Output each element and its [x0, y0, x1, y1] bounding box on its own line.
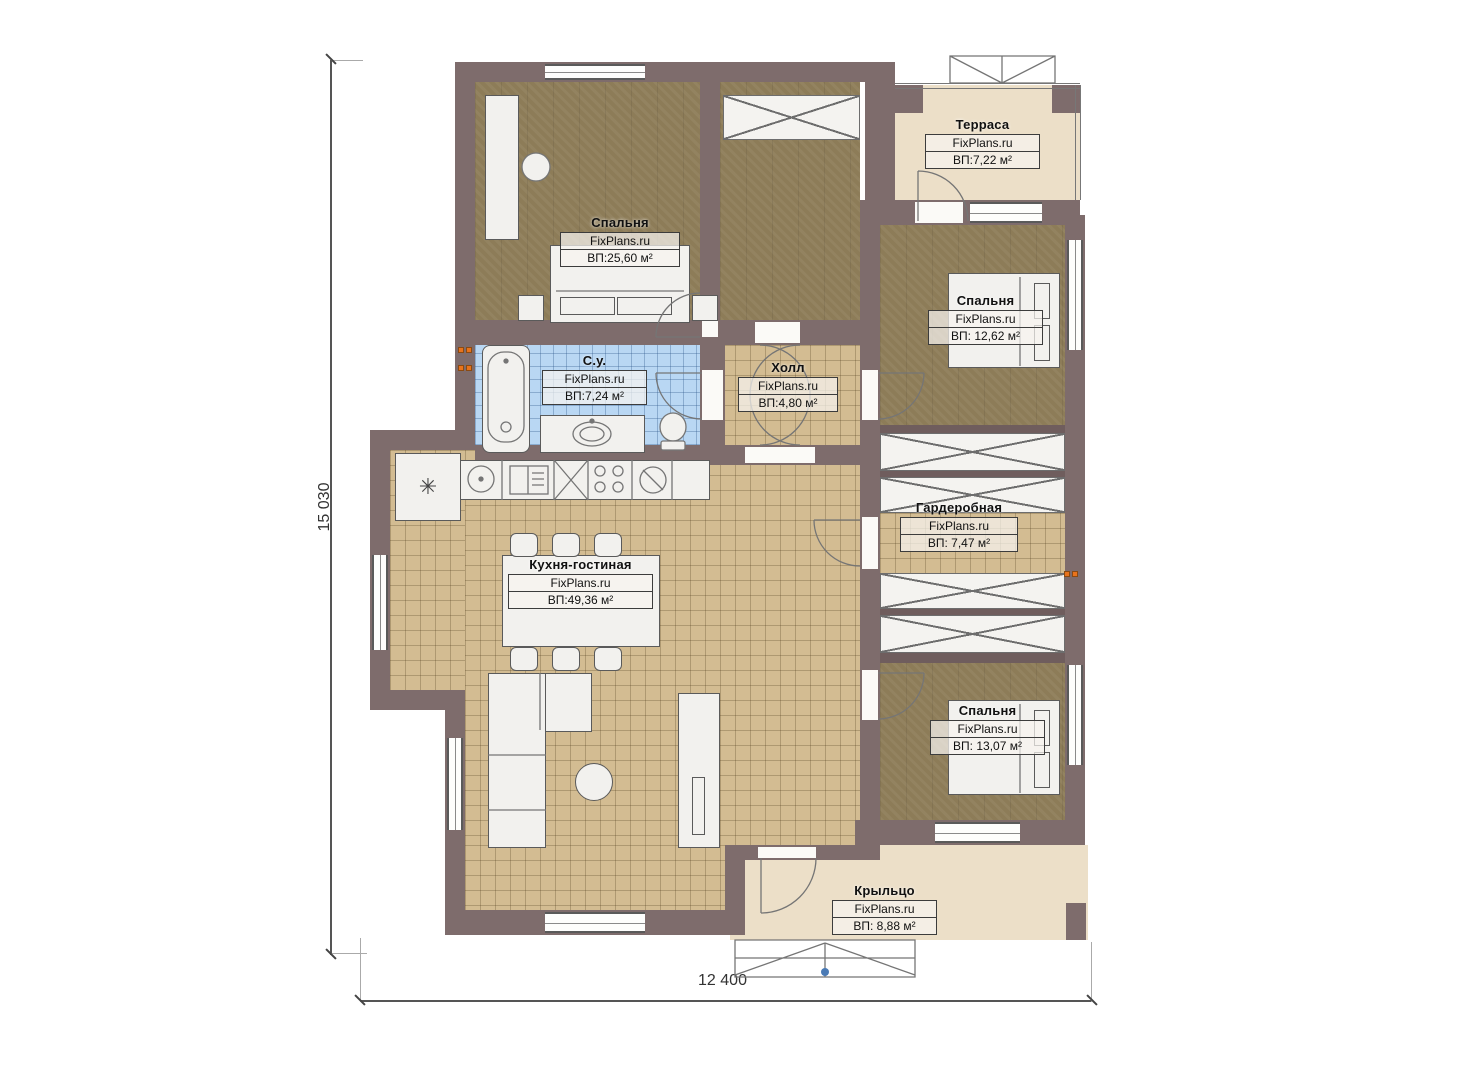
door-opening-kitchen	[745, 447, 815, 463]
window-bedroom1	[545, 64, 645, 80]
room-label-hall: Холл FixPlans.ru ВП:4,80 м²	[738, 360, 838, 412]
room-label-bedroom-2: Спальня FixPlans.ru ВП: 12,62 м²	[928, 293, 1043, 345]
room-area: ВП:49,36 м²	[509, 592, 652, 608]
room-label-bedroom-3: Спальня FixPlans.ru ВП: 13,07 м²	[930, 703, 1045, 755]
door-opening-terrace	[915, 202, 963, 223]
radiator-icon	[466, 347, 472, 353]
room-area: ВП:4,80 м²	[739, 395, 837, 411]
window-kitchen-bay	[372, 555, 388, 650]
terrace-post	[895, 85, 923, 113]
brand-watermark: FixPlans.ru	[901, 518, 1017, 535]
room-label-porch: Крыльцо FixPlans.ru ВП: 8,88 м²	[832, 883, 937, 935]
brand-watermark: FixPlans.ru	[509, 575, 652, 592]
nightstand	[692, 295, 718, 321]
room-area: ВП: 7,47 м²	[901, 535, 1017, 551]
porch-post	[1066, 903, 1086, 940]
sofa-arm-vertical	[488, 673, 546, 848]
pillow	[617, 297, 672, 315]
boiler-icon: ✳	[395, 453, 461, 521]
radiator-icon	[1072, 571, 1078, 577]
window-living-south	[545, 912, 645, 933]
window-bedroom2-north	[970, 202, 1042, 223]
extension-line	[331, 953, 367, 954]
room-area: ВП: 12,62 м²	[929, 328, 1042, 344]
living-floor-lower	[465, 845, 735, 910]
floor-plan: ✳	[360, 55, 1100, 980]
wall-bedroom3-north	[880, 653, 1065, 663]
room-name: С.у.	[542, 353, 647, 368]
room-info-box: FixPlans.ru ВП:49,36 м²	[508, 574, 653, 609]
room-name: Спальня	[560, 215, 680, 230]
room-name: Крыльцо	[832, 883, 937, 898]
desk	[485, 95, 519, 240]
door-opening-bathroom	[702, 370, 723, 420]
wall-central-vertical	[860, 200, 880, 820]
radiator-icon	[466, 365, 472, 371]
tv-icon	[692, 777, 705, 835]
pillow	[560, 297, 615, 315]
door-opening-entry	[758, 847, 816, 858]
radiator-icon	[1064, 571, 1070, 577]
wall-north	[455, 62, 895, 82]
vanity	[540, 415, 645, 453]
room-info-box: FixPlans.ru ВП:25,60 м²	[560, 232, 680, 267]
wardrobe-unit	[723, 95, 860, 140]
porch-step-marker	[821, 968, 829, 976]
room-label-terrace: Терраса FixPlans.ru ВП:7,22 м²	[925, 117, 1040, 169]
kitchen-counter	[460, 460, 710, 500]
chair	[552, 533, 580, 557]
chair	[510, 647, 538, 671]
wall-west-upper	[455, 62, 475, 450]
room-label-bedroom-1: Спальня FixPlans.ru ВП:25,60 м²	[560, 215, 680, 267]
brand-watermark: FixPlans.ru	[931, 721, 1044, 738]
room-name: Терраса	[925, 117, 1040, 132]
wardrobe-unit	[880, 433, 1065, 471]
door-opening-wardrobe	[862, 517, 878, 569]
room-info-box: FixPlans.ru ВП: 12,62 м²	[928, 310, 1043, 345]
wall-terrace-west	[865, 62, 895, 202]
window-bedroom3-east	[1067, 665, 1083, 765]
floor-plan-canvas: 15 030 12 400	[0, 0, 1474, 1080]
room-info-box: FixPlans.ru ВП:4,80 м²	[738, 377, 838, 412]
extension-line	[1091, 942, 1092, 1002]
radiator-icon	[458, 365, 464, 371]
brand-watermark: FixPlans.ru	[926, 135, 1039, 152]
room-info-box: FixPlans.ru ВП:7,24 м²	[542, 370, 647, 405]
height-dimension-label: 15 030	[316, 457, 334, 557]
brand-watermark: FixPlans.ru	[543, 371, 646, 388]
width-dimension-label: 12 400	[650, 972, 795, 990]
brand-watermark: FixPlans.ru	[739, 378, 837, 395]
nightstand	[518, 295, 544, 321]
room-area: ВП:7,22 м²	[926, 152, 1039, 168]
room-area: ВП:25,60 м²	[561, 250, 679, 266]
window-living-west	[447, 738, 463, 830]
room-area: ВП: 13,07 м²	[931, 738, 1044, 754]
terrace-railing-side	[1075, 85, 1081, 200]
wardrobe-unit	[880, 573, 1065, 609]
brand-watermark: FixPlans.ru	[561, 233, 679, 250]
room-name: Кухня-гостиная	[508, 557, 653, 572]
radiator-icon	[458, 347, 464, 353]
room-area: ВП:7,24 м²	[543, 388, 646, 404]
door-opening-bedroom2	[862, 370, 878, 420]
room-label-bathroom: С.у. FixPlans.ru ВП:7,24 м²	[542, 353, 647, 405]
room-name: Гардеробная	[900, 500, 1018, 515]
chair	[594, 533, 622, 557]
room-info-box: FixPlans.ru ВП: 7,47 м²	[900, 517, 1018, 552]
horizontal-dimension-line	[360, 1000, 1092, 1002]
room-name: Холл	[738, 360, 838, 375]
door-opening-hall-north	[755, 322, 800, 343]
extension-line	[360, 938, 361, 1002]
coffee-table	[575, 763, 613, 801]
room-info-box: FixPlans.ru ВП: 13,07 м²	[930, 720, 1045, 755]
room-label-wardrobe: Гардеробная FixPlans.ru ВП: 7,47 м²	[900, 500, 1018, 552]
brand-watermark: FixPlans.ru	[929, 311, 1042, 328]
room-name: Спальня	[930, 703, 1045, 718]
chair	[552, 647, 580, 671]
window-bedroom2-east	[1067, 240, 1083, 350]
chair	[510, 533, 538, 557]
wall-bedroom2-south	[880, 425, 1065, 433]
room-info-box: FixPlans.ru ВП: 8,88 м²	[832, 900, 937, 935]
pillow	[1034, 752, 1050, 788]
bathtub	[482, 345, 530, 453]
door-opening-bedroom3	[862, 670, 878, 720]
window-bedroom3-south	[935, 822, 1020, 843]
terrace-railing	[895, 83, 1080, 89]
wardrobe-unit	[880, 615, 1065, 653]
room-area: ВП: 8,88 м²	[833, 918, 936, 934]
chair	[594, 647, 622, 671]
room-name: Спальня	[928, 293, 1043, 308]
extension-line	[331, 60, 363, 61]
brand-watermark: FixPlans.ru	[833, 901, 936, 918]
wall-mid-horizontal	[475, 320, 880, 345]
room-label-kitchen-living: Кухня-гостиная FixPlans.ru ВП:49,36 м²	[508, 557, 653, 609]
room-info-box: FixPlans.ru ВП:7,22 м²	[925, 134, 1040, 169]
